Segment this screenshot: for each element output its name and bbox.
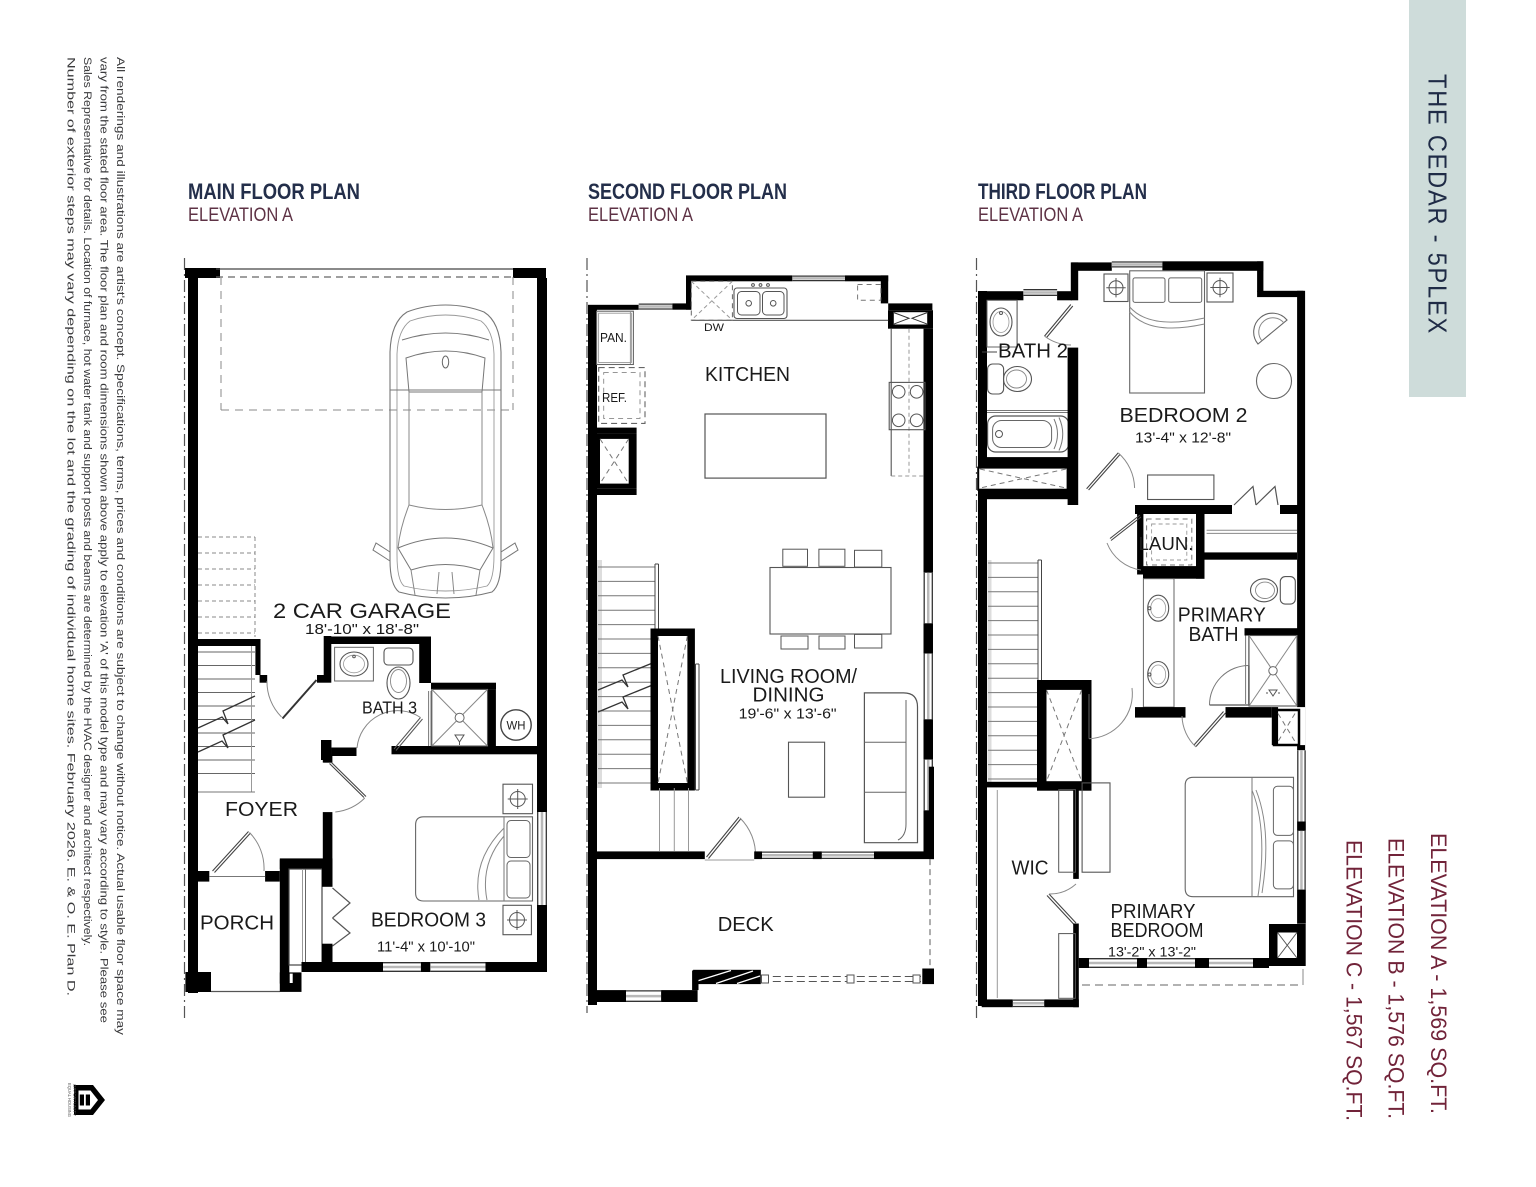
svg-text:THE CEDAR - 5PLEX: THE CEDAR - 5PLEX <box>1423 74 1453 335</box>
svg-text:MAIN FLOOR PLAN: MAIN FLOOR PLAN <box>188 179 360 204</box>
svg-text:18'-10" x 18'-8": 18'-10" x 18'-8" <box>305 622 419 638</box>
svg-text:WH: WH <box>507 721 526 733</box>
svg-text:REF.: REF. <box>602 390 627 405</box>
svg-text:BATH: BATH <box>1189 624 1239 646</box>
svg-text:BATH 2: BATH 2 <box>998 341 1068 363</box>
svg-text:OPPORTUNITY: OPPORTUNITY <box>72 1084 77 1116</box>
svg-text:ELEVATION C - 1,567 SQ.FT.: ELEVATION C - 1,567 SQ.FT. <box>1342 840 1367 1121</box>
svg-text:DINING: DINING <box>753 684 825 707</box>
svg-text:vary from the stated floor are: vary from the stated floor area. The flo… <box>98 57 110 1023</box>
svg-text:EQUAL HOUSING: EQUAL HOUSING <box>67 1083 72 1117</box>
svg-text:KITCHEN: KITCHEN <box>705 363 790 386</box>
svg-text:11'-4" x 10'-10": 11'-4" x 10'-10" <box>377 940 475 956</box>
svg-text:BATH 3: BATH 3 <box>362 698 417 718</box>
svg-text:LAUN.: LAUN. <box>1139 533 1194 554</box>
svg-text:13'-2" x 13'-2": 13'-2" x 13'-2" <box>1108 944 1196 960</box>
svg-text:BEDROOM 3: BEDROOM 3 <box>371 909 486 932</box>
svg-text:ELEVATION A: ELEVATION A <box>188 205 293 226</box>
svg-text:19'-6" x 13'-6": 19'-6" x 13'-6" <box>739 707 837 723</box>
svg-text:THIRD FLOOR PLAN: THIRD FLOOR PLAN <box>978 179 1147 204</box>
svg-text:2 CAR GARAGE: 2 CAR GARAGE <box>273 600 451 623</box>
svg-text:Sales Representative for detai: Sales Representative for details. Locati… <box>81 57 93 946</box>
svg-text:DW: DW <box>704 322 725 334</box>
svg-text:WIC: WIC <box>1012 857 1049 880</box>
svg-text:ELEVATION B - 1,576 SQ.FT.: ELEVATION B - 1,576 SQ.FT. <box>1384 838 1409 1119</box>
svg-text:PORCH: PORCH <box>200 912 274 935</box>
svg-text:SECOND FLOOR PLAN: SECOND FLOOR PLAN <box>588 179 787 204</box>
svg-text:All renderings and illustratio: All renderings and illustrations are art… <box>114 57 126 1035</box>
svg-text:Number of exterior steps may v: Number of exterior steps may vary depend… <box>65 57 77 996</box>
svg-text:ELEVATION A: ELEVATION A <box>978 205 1083 226</box>
svg-text:FOYER: FOYER <box>225 798 298 821</box>
svg-text:BEDROOM: BEDROOM <box>1111 920 1204 942</box>
svg-text:13'-4" x 12'-8": 13'-4" x 12'-8" <box>1135 431 1231 447</box>
svg-text:DECK: DECK <box>718 913 774 936</box>
svg-text:ELEVATION A - 1,569 SQ.FT.: ELEVATION A - 1,569 SQ.FT. <box>1426 833 1451 1114</box>
svg-text:PAN.: PAN. <box>600 330 627 345</box>
svg-text:BEDROOM 2: BEDROOM 2 <box>1120 404 1248 427</box>
svg-text:ELEVATION A: ELEVATION A <box>588 205 693 226</box>
